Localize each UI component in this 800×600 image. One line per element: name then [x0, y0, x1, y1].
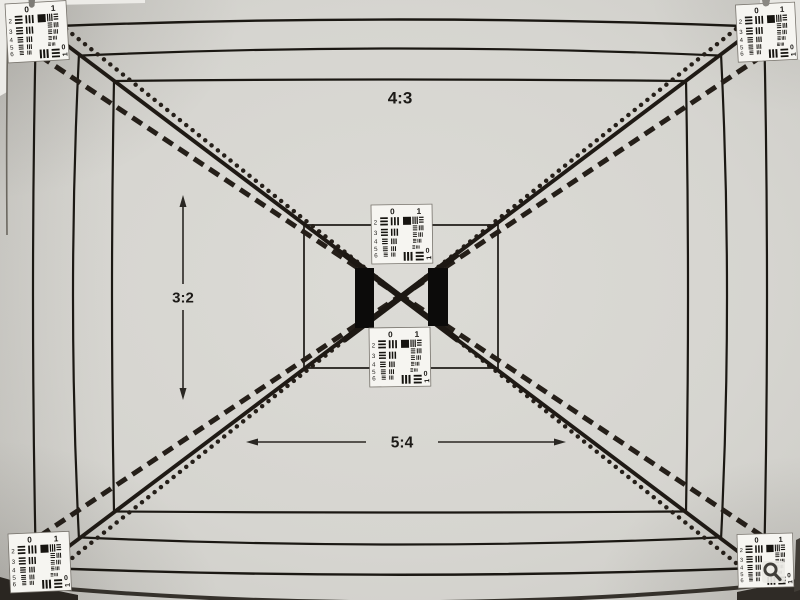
svg-text:4:3: 4:3	[388, 89, 413, 108]
svg-text:5:4: 5:4	[391, 435, 414, 452]
svg-text:3:2: 3:2	[172, 290, 194, 307]
